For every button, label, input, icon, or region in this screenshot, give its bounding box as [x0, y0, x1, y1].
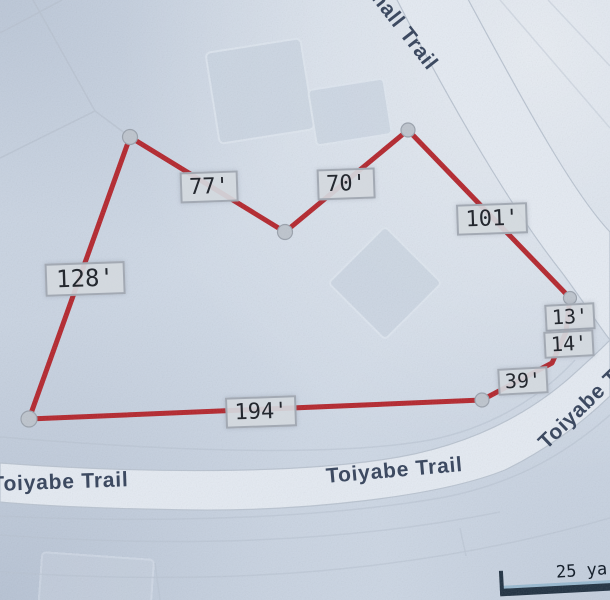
measurement-label-128: 128' [45, 261, 126, 297]
measurement-label-70: 70' [317, 167, 376, 200]
measurement-label-77: 77' [180, 170, 239, 203]
grain-overlay [0, 0, 610, 600]
measurement-label-194: 194' [225, 395, 297, 429]
measurement-label-14: 14' [543, 329, 594, 359]
measurement-label-13: 13' [544, 302, 595, 332]
map-drawing [0, 0, 610, 600]
scale-label: 25 ya [555, 559, 607, 583]
measurement-label-39: 39' [497, 366, 548, 396]
map-canvas: nall Trail Toiyabe Trail Toiyabe Trail T… [0, 0, 610, 600]
street-label-toiyabe-trail-left: Toiyabe Trail [0, 468, 129, 497]
measurement-label-101: 101' [456, 202, 528, 236]
